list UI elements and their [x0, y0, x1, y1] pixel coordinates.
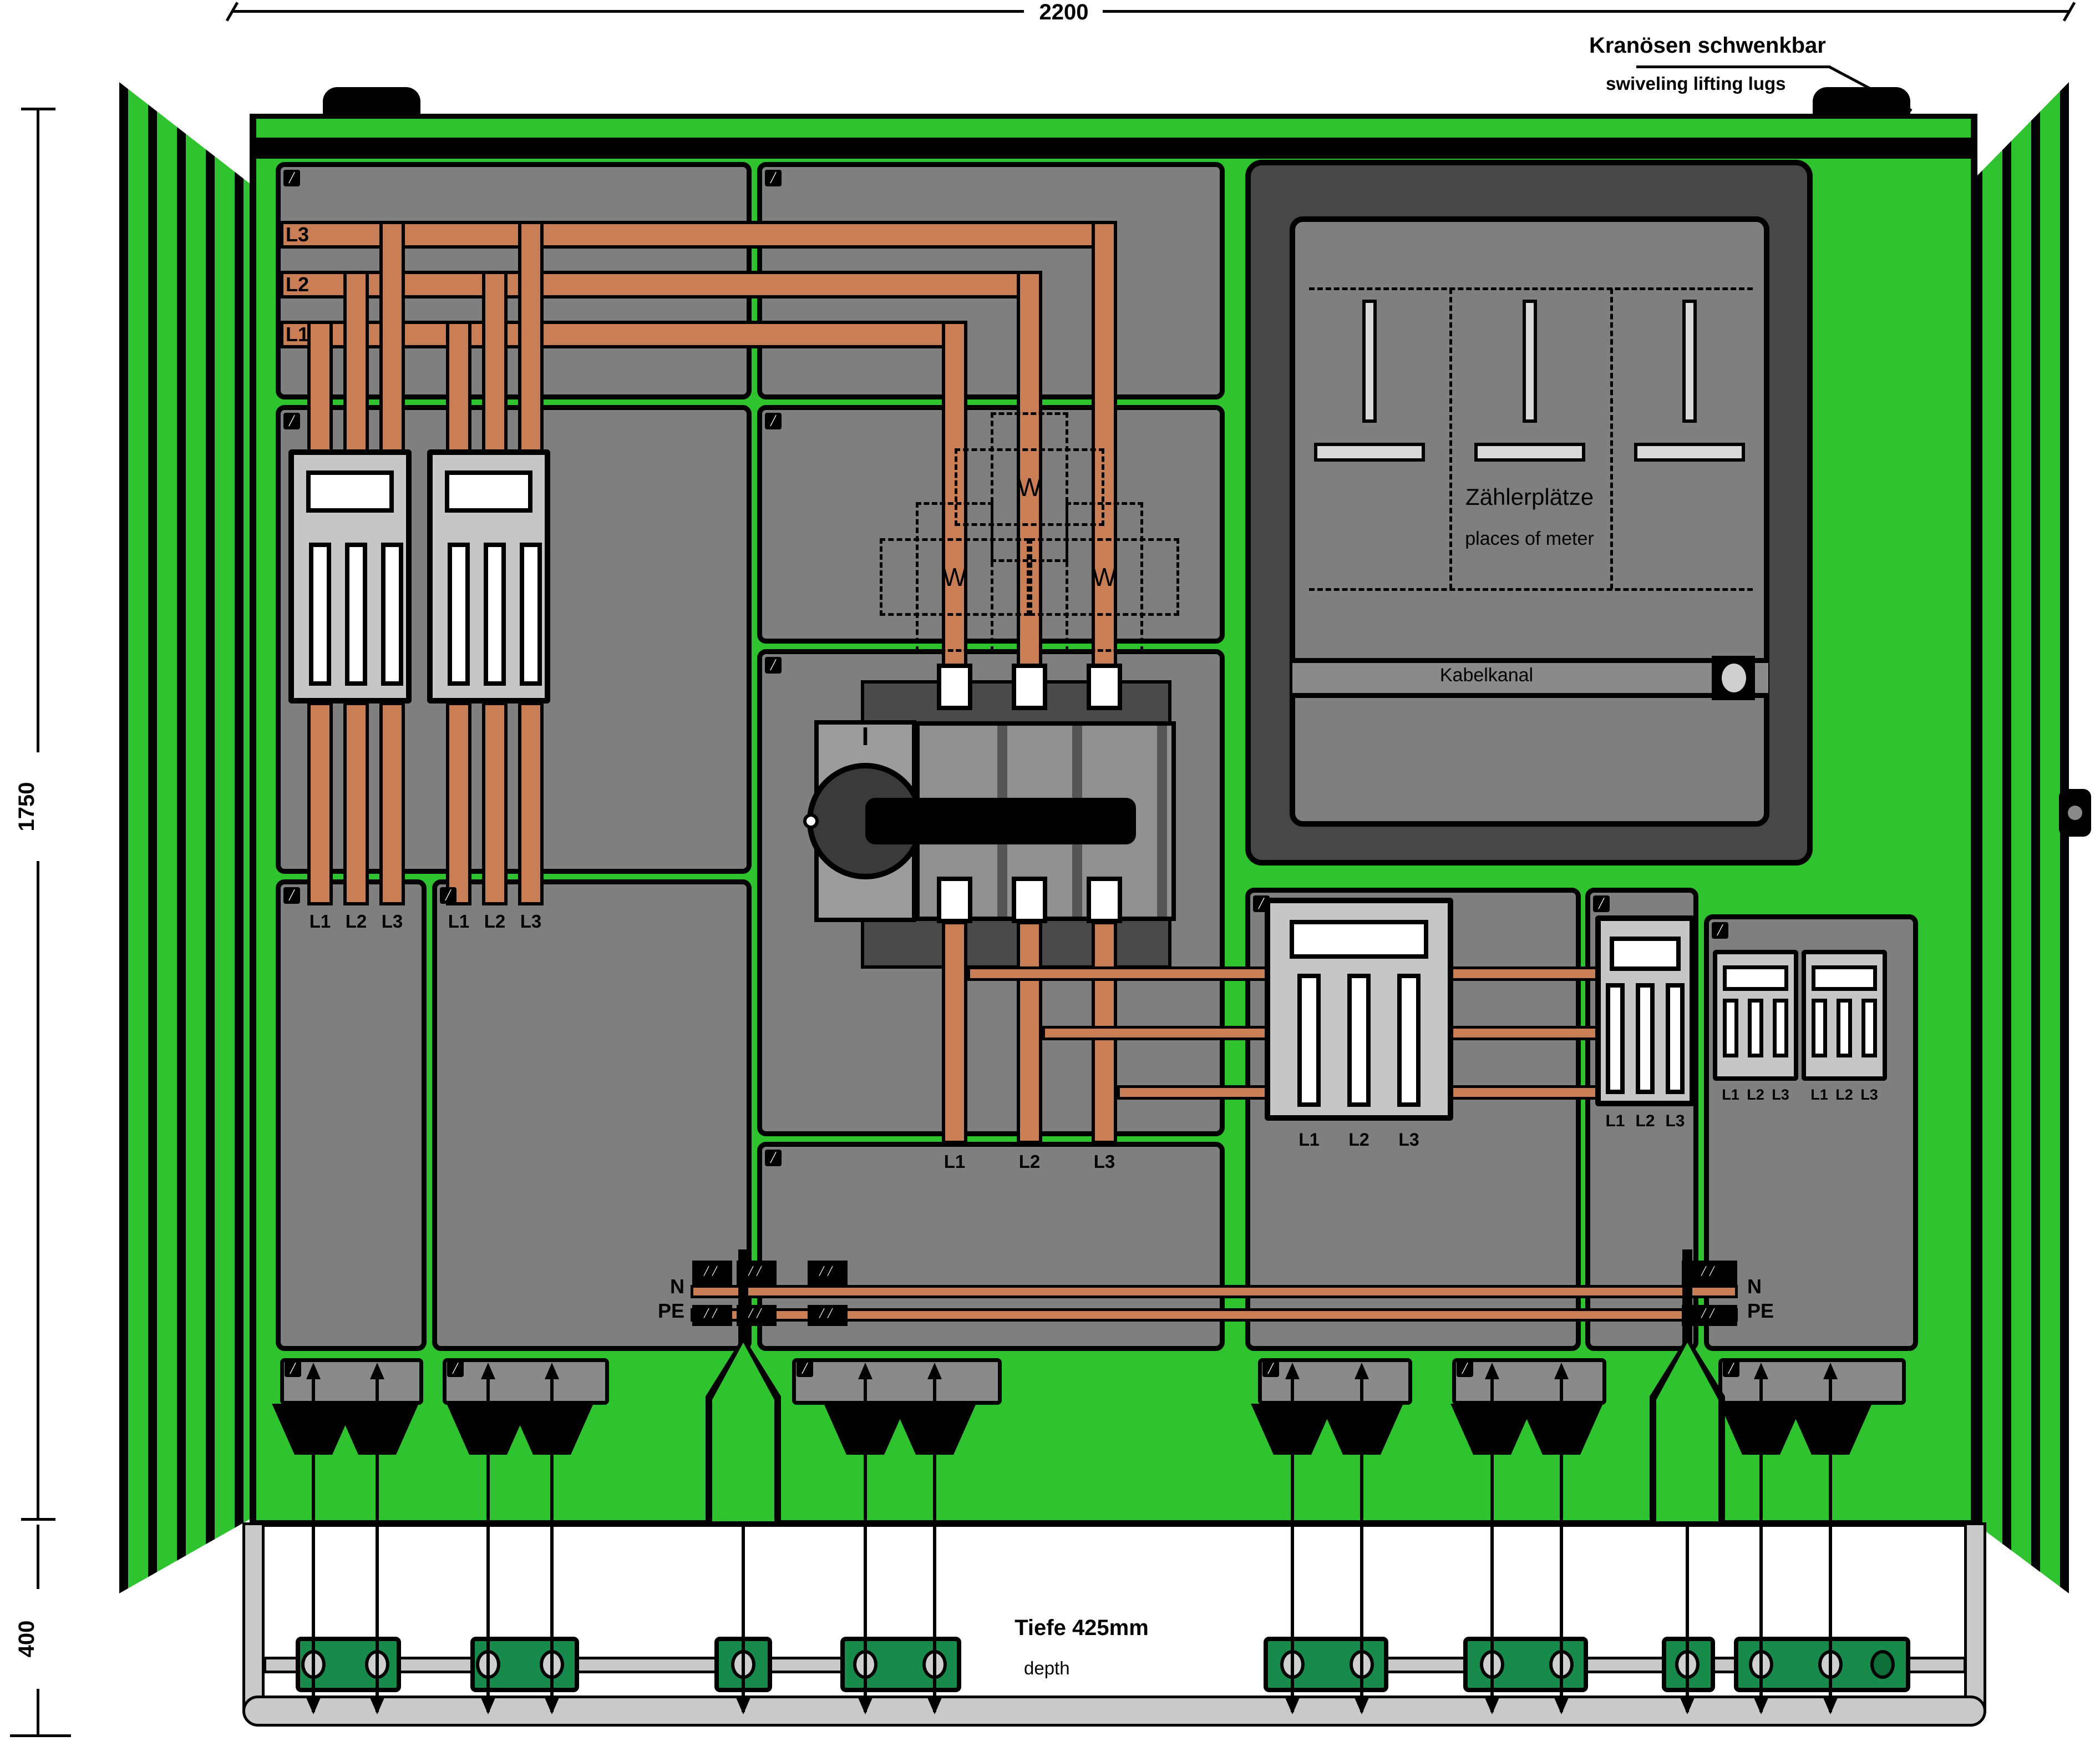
dim-height-label: 1750	[14, 762, 39, 851]
cable-line	[376, 1370, 379, 1712]
meter-title-en: places of meter	[1345, 528, 1714, 550]
rail-hole-spare	[1870, 1650, 1895, 1679]
meter-slot-1	[1362, 300, 1377, 423]
arrow-down-icon	[736, 1698, 750, 1714]
cable-line	[550, 1370, 554, 1712]
arrow-up-icon	[481, 1363, 495, 1379]
switch-position-label: I	[849, 721, 882, 751]
fuse-block-left-1-slot1	[309, 543, 331, 686]
arrow-down-icon	[1285, 1698, 1300, 1714]
switch-terminal-top-1	[937, 664, 972, 710]
screw-icon: ╱	[285, 1360, 301, 1377]
clamp-PE-3: ╱╱	[808, 1305, 848, 1326]
out-block1-L3	[379, 702, 405, 905]
arrow-down-icon	[1754, 1698, 1768, 1714]
arrow-down-icon	[1823, 1698, 1838, 1714]
dim-height-line-bottom	[37, 861, 39, 1519]
cable-line	[933, 1370, 936, 1712]
cable-line	[1686, 1525, 1689, 1712]
dim-base-tick-bottom	[10, 1734, 71, 1737]
cable-duct-label: Kabelkanal	[1348, 665, 1625, 686]
screw-icon: ╱	[1457, 1360, 1473, 1377]
arrow-up-icon	[306, 1363, 321, 1379]
transformer-w3: W	[1029, 502, 1179, 652]
meter-slot-2	[1523, 300, 1537, 423]
arrow-down-icon	[1680, 1698, 1695, 1714]
dim-base-label: 400	[14, 1595, 39, 1683]
base-leg-left	[242, 1522, 265, 1711]
screw-icon: ╱	[1262, 1360, 1279, 1377]
arrow-up-icon	[545, 1363, 559, 1379]
cable-duct-grommet-hole	[1722, 664, 1746, 692]
arrow-up-icon	[1285, 1363, 1300, 1379]
fuse-block-right-1-slot3	[1397, 974, 1421, 1107]
lifting-lug-icon-right	[1813, 87, 1910, 115]
switch-phase-L3: L3	[1079, 1151, 1129, 1172]
fuse-block-right-2-slot2	[1636, 983, 1655, 1094]
screw-icon: ╱	[1712, 922, 1728, 939]
tap-block2-L1	[446, 321, 471, 454]
block1-phase-L3: L3	[367, 911, 417, 932]
fuse-block-right-1-slot2	[1347, 974, 1371, 1107]
depth-label-de: Tiefe 425mm	[965, 1616, 1198, 1641]
lifting-lug-underline	[1636, 65, 1830, 68]
busbar-N	[691, 1285, 1738, 1298]
switch-back-bottom	[861, 918, 1171, 969]
fuse-block-right-1-slot1	[1297, 974, 1321, 1107]
tap-block1-L2	[343, 271, 369, 454]
fuse-block-small-b-slot2	[1837, 999, 1852, 1057]
fuse-block-right-2-window	[1610, 937, 1681, 971]
cabinet-drawing: 2200 1750 400 Kranösen schwenkbar swivel…	[0, 0, 2100, 1746]
cable-line	[864, 1370, 867, 1712]
arrow-up-icon	[1355, 1363, 1369, 1379]
cabinet-roof-strip	[256, 119, 1971, 138]
module-lower-left-a	[276, 879, 427, 1351]
busbar-PE	[691, 1308, 1738, 1322]
fuse-block-left-1-slot3	[381, 543, 403, 686]
arrow-up-icon	[1554, 1363, 1569, 1379]
arrow-up-icon	[370, 1363, 384, 1379]
arrow-down-icon	[306, 1698, 321, 1714]
screw-icon: ╱	[765, 1150, 782, 1166]
arrow-down-icon	[1485, 1698, 1499, 1714]
fuse-block-left-1-window	[306, 470, 394, 513]
busbar-N-label-left: N	[638, 1275, 684, 1298]
dim-base-line-top	[37, 1525, 39, 1589]
screw-icon: ╱	[440, 887, 456, 904]
arrow-down-icon	[1554, 1698, 1569, 1714]
meter-bar-3	[1634, 443, 1745, 462]
meter-divider-bottom	[1309, 588, 1753, 591]
fuse-block-right-1-window	[1290, 920, 1428, 959]
small-a-phase-L3: L3	[1763, 1086, 1798, 1104]
busbar-PE-label-right: PE	[1747, 1299, 1774, 1323]
screw-icon: ╱	[1253, 895, 1270, 912]
cable-flange-5	[1452, 1358, 1606, 1405]
depth-label-en: depth	[1024, 1658, 1070, 1679]
cable-line	[1360, 1370, 1363, 1712]
busbar-PE-label-left: PE	[627, 1299, 684, 1323]
transformer-w2-label: W	[955, 472, 1104, 502]
door-left	[119, 82, 250, 1593]
arrow-up-icon	[858, 1363, 873, 1379]
arrow-down-icon	[481, 1698, 495, 1714]
lifting-lug-icon-left	[323, 87, 420, 115]
transformer-w3-label: W	[1029, 562, 1179, 592]
dim-base-line-bottom	[37, 1689, 39, 1737]
switch-terminal-bottom-2	[1012, 877, 1047, 923]
cable-line	[742, 1525, 745, 1712]
meter-bar-1	[1314, 443, 1425, 462]
lifting-lug-callout-en: swiveling lifting lugs	[1606, 73, 1786, 94]
dim-width-label: 2200	[1025, 0, 1103, 25]
arrow-down-icon	[370, 1698, 384, 1714]
screw-icon: ╱	[1593, 895, 1610, 912]
fuse-block-small-a-window	[1723, 965, 1788, 991]
right1-phase-L3: L3	[1384, 1130, 1434, 1150]
fuse-block-left-2-window	[445, 470, 532, 513]
tap-block2-L3	[518, 221, 544, 454]
arrow-down-icon	[858, 1698, 873, 1714]
cable-line	[486, 1370, 490, 1712]
cable-flange-1	[280, 1358, 423, 1405]
arrow-up-icon	[927, 1363, 942, 1379]
screw-icon: ╱	[765, 413, 782, 429]
clamp-N-3: ╱╱	[808, 1261, 848, 1287]
right2-phase-L3: L3	[1650, 1112, 1700, 1131]
tap-block2-L2	[482, 271, 508, 454]
arrow-up-icon	[1485, 1363, 1499, 1379]
screw-icon: ╱	[765, 657, 782, 674]
busbar-L2-label: L2	[286, 273, 309, 296]
screw-icon: ╱	[447, 1360, 464, 1377]
cable-flange-4	[1258, 1358, 1412, 1405]
busbar-L3	[280, 221, 1116, 249]
cable-flange-2	[443, 1358, 609, 1405]
base-leg-right	[1964, 1522, 1986, 1711]
busbar-L1-label: L1	[286, 323, 309, 346]
fuse-block-left-2-slot3	[520, 543, 542, 686]
screw-icon: ╱	[283, 413, 300, 429]
fuse-block-small-b-slot1	[1812, 999, 1827, 1057]
cable-line	[1490, 1370, 1494, 1712]
fuse-block-right-2-slot3	[1666, 983, 1685, 1094]
switch-terminal-top-2	[1012, 664, 1047, 710]
switch-lever[interactable]	[865, 798, 1136, 844]
dim-height-tick-top	[21, 108, 55, 110]
switch-phase-L1: L1	[930, 1151, 980, 1172]
switch-terminal-bottom-3	[1087, 877, 1122, 923]
fuse-block-small-b-window	[1812, 965, 1877, 991]
arrow-down-icon	[545, 1698, 559, 1714]
screw-icon: ╱	[283, 887, 300, 904]
out-block1-L2	[343, 702, 369, 905]
out-block2-L2	[482, 702, 508, 905]
out-switch-L2	[1017, 921, 1042, 1144]
tap-block1-L1	[307, 321, 333, 454]
screw-icon: ╱	[1723, 1360, 1739, 1377]
tap-block1-L3	[379, 221, 405, 454]
out-block2-L3	[518, 702, 544, 905]
fuse-block-small-a-slot2	[1748, 999, 1763, 1057]
lifting-lug-callout-de: Kranösen schwenkbar	[1589, 33, 1826, 58]
clamp-N-1: ╱╱	[692, 1261, 732, 1287]
dim-height-line-top	[37, 109, 39, 752]
base-tube	[242, 1696, 1986, 1727]
arrow-up-icon	[1754, 1363, 1768, 1379]
meter-slot-3	[1682, 300, 1697, 423]
fuse-block-left-2-slot1	[448, 543, 470, 686]
dim-width-line-right	[1103, 10, 2070, 13]
switch-terminal-bottom-1	[937, 877, 972, 923]
fuse-block-small-a-slot3	[1773, 999, 1788, 1057]
switch-terminal-top-3	[1087, 664, 1122, 710]
cable-line	[1560, 1370, 1563, 1712]
clamp-PE-1: ╱╱	[692, 1305, 732, 1326]
screw-icon: ╱	[283, 170, 300, 186]
meter-divider-top	[1309, 287, 1753, 290]
fuse-block-right-2-slot1	[1606, 983, 1625, 1094]
arrow-up-icon	[1823, 1363, 1838, 1379]
busbar-N-label-right: N	[1747, 1275, 1762, 1298]
fuse-block-left-2-slot2	[484, 543, 506, 686]
cable-line	[1291, 1370, 1294, 1712]
fuse-block-small-b-slot3	[1861, 999, 1877, 1057]
door-right	[1970, 82, 2069, 1593]
meter-title-de: Zählerplätze	[1345, 484, 1714, 510]
switch-pivot-dot	[803, 813, 819, 829]
screw-icon: ╱	[797, 1360, 813, 1377]
out-switch-L1	[942, 921, 967, 1144]
meter-bar-2	[1474, 443, 1585, 462]
dim-width-line-left	[232, 10, 1024, 13]
out-block2-L1	[446, 702, 471, 905]
cable-flange-6	[1718, 1358, 1906, 1405]
switch-body-strip3	[1157, 726, 1167, 917]
busbar-L3-label: L3	[286, 223, 309, 246]
small-b-phase-L3: L3	[1852, 1086, 1887, 1104]
cable-line	[312, 1370, 315, 1712]
right1-phase-L1: L1	[1284, 1130, 1334, 1150]
switch-phase-L2: L2	[1005, 1151, 1054, 1172]
fuse-block-small-a-slot1	[1723, 999, 1738, 1057]
arrow-down-icon	[927, 1698, 942, 1714]
right1-phase-L2: L2	[1334, 1130, 1384, 1150]
out-block1-L1	[307, 702, 333, 905]
arrow-down-icon	[1355, 1698, 1369, 1714]
block2-phase-L3: L3	[506, 911, 556, 932]
door-handle-dot	[2068, 806, 2082, 820]
dim-height-tick-bottom	[21, 1518, 55, 1521]
cable-flange-3	[792, 1358, 1002, 1405]
transformer-w1-label: W	[880, 562, 1029, 592]
cable-line	[1759, 1370, 1763, 1712]
screw-icon: ╱	[765, 170, 782, 186]
cable-line	[1829, 1370, 1832, 1712]
fuse-block-left-1-slot2	[345, 543, 367, 686]
